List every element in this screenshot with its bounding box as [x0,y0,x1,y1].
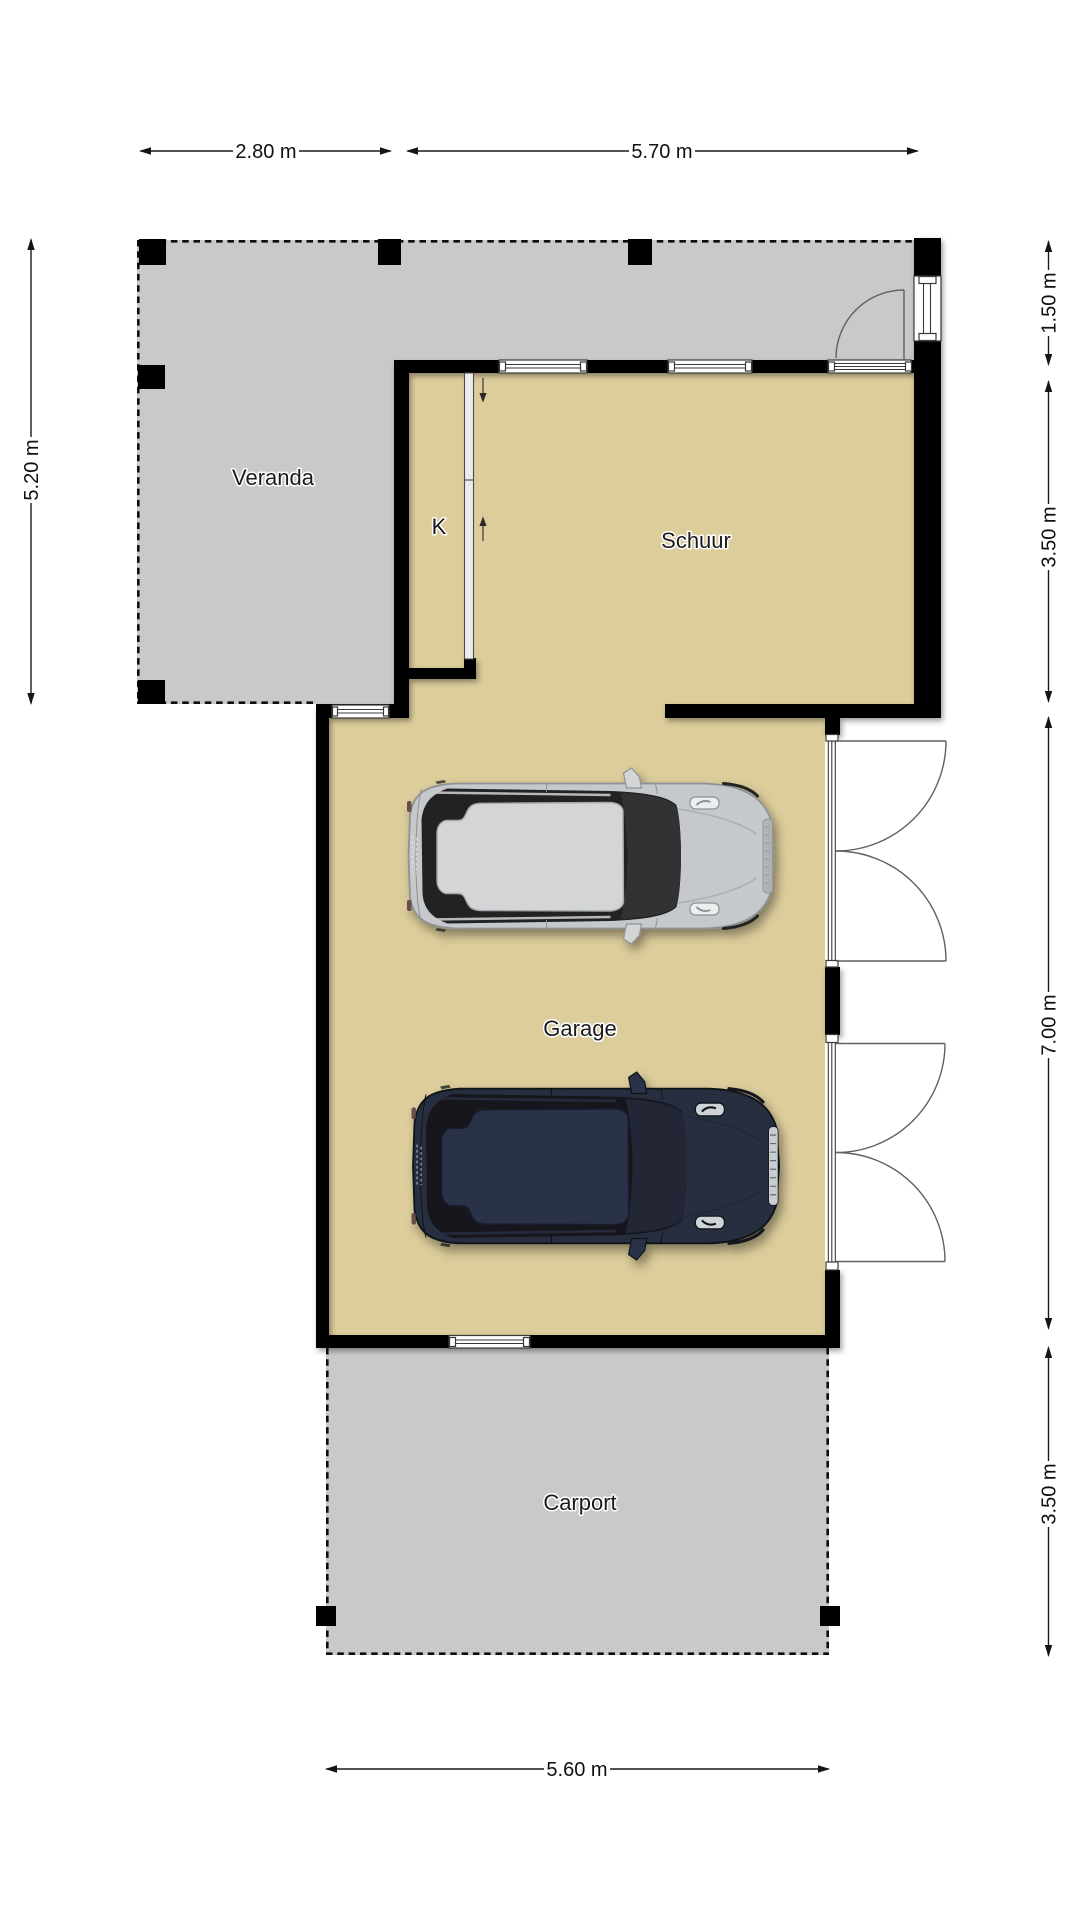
svg-text:3.50 m: 3.50 m [1039,506,1061,567]
svg-text:3.50 m: 3.50 m [1039,1463,1061,1524]
svg-text:Garage: Garage [543,1016,616,1041]
svg-text:Carport: Carport [543,1490,616,1515]
svg-text:2.80 m: 2.80 m [235,141,296,163]
svg-text:7.00 m: 7.00 m [1039,994,1061,1055]
svg-text:5.20 m: 5.20 m [21,439,43,500]
svg-text:Schuur: Schuur [661,528,731,553]
svg-text:1.50 m: 1.50 m [1039,272,1061,333]
svg-text:5.60 m: 5.60 m [546,1759,607,1781]
svg-text:K: K [432,514,447,539]
svg-text:Veranda: Veranda [232,465,315,490]
svg-text:5.70 m: 5.70 m [631,141,692,163]
